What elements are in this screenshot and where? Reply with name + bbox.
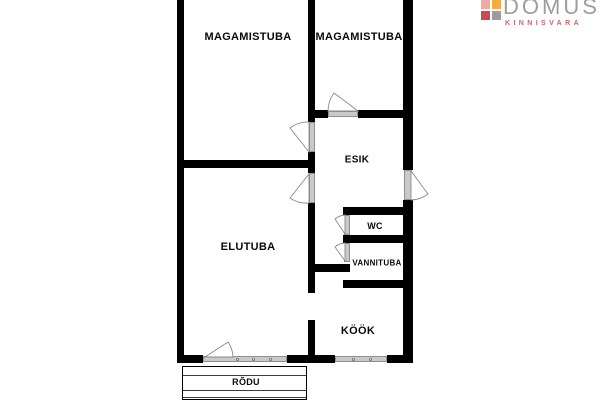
domus-logo: DOMUS KINNISVARA: [481, 0, 600, 30]
bedroom1-door-arc: [290, 122, 309, 152]
room-label-vannituba: VANNITUBA: [352, 259, 401, 268]
logo-square-top-left: [481, 0, 490, 9]
room-label-magamistuba-2: MAGAMISTUBA: [315, 31, 402, 43]
room-label-esik: ESIK: [345, 155, 370, 166]
wc-door-arc: [335, 215, 345, 234]
logo-square-bottom-left: [481, 11, 490, 20]
domus-logo-icon: [481, 0, 501, 20]
logo-square-top-right: [492, 0, 501, 9]
logo-tagline-text: KINNISVARA: [505, 20, 582, 27]
room-label-rodu: RÕDU: [228, 377, 264, 387]
entrance-door-arc: [411, 171, 428, 200]
room-label-elutuba: ELUTUBA: [221, 241, 276, 253]
floor-plan: MAGAMISTUBAMAGAMISTUBAESIKWCVANNITUBAELU…: [0, 0, 600, 400]
vannituba-door-arc: [335, 243, 345, 261]
logo-square-bottom-right: [492, 11, 501, 20]
room-label-kook: KÖÖK: [341, 325, 375, 337]
elutuba-door-arc: [290, 174, 309, 203]
door-arcs-layer: [0, 0, 600, 400]
balcony-door-arc: [205, 342, 233, 357]
bedroom2-door-arc: [328, 93, 358, 111]
logo-brand-text: DOMUS: [503, 0, 600, 18]
room-label-magamistuba-1: MAGAMISTUBA: [204, 31, 291, 43]
room-label-wc: WC: [367, 221, 383, 231]
